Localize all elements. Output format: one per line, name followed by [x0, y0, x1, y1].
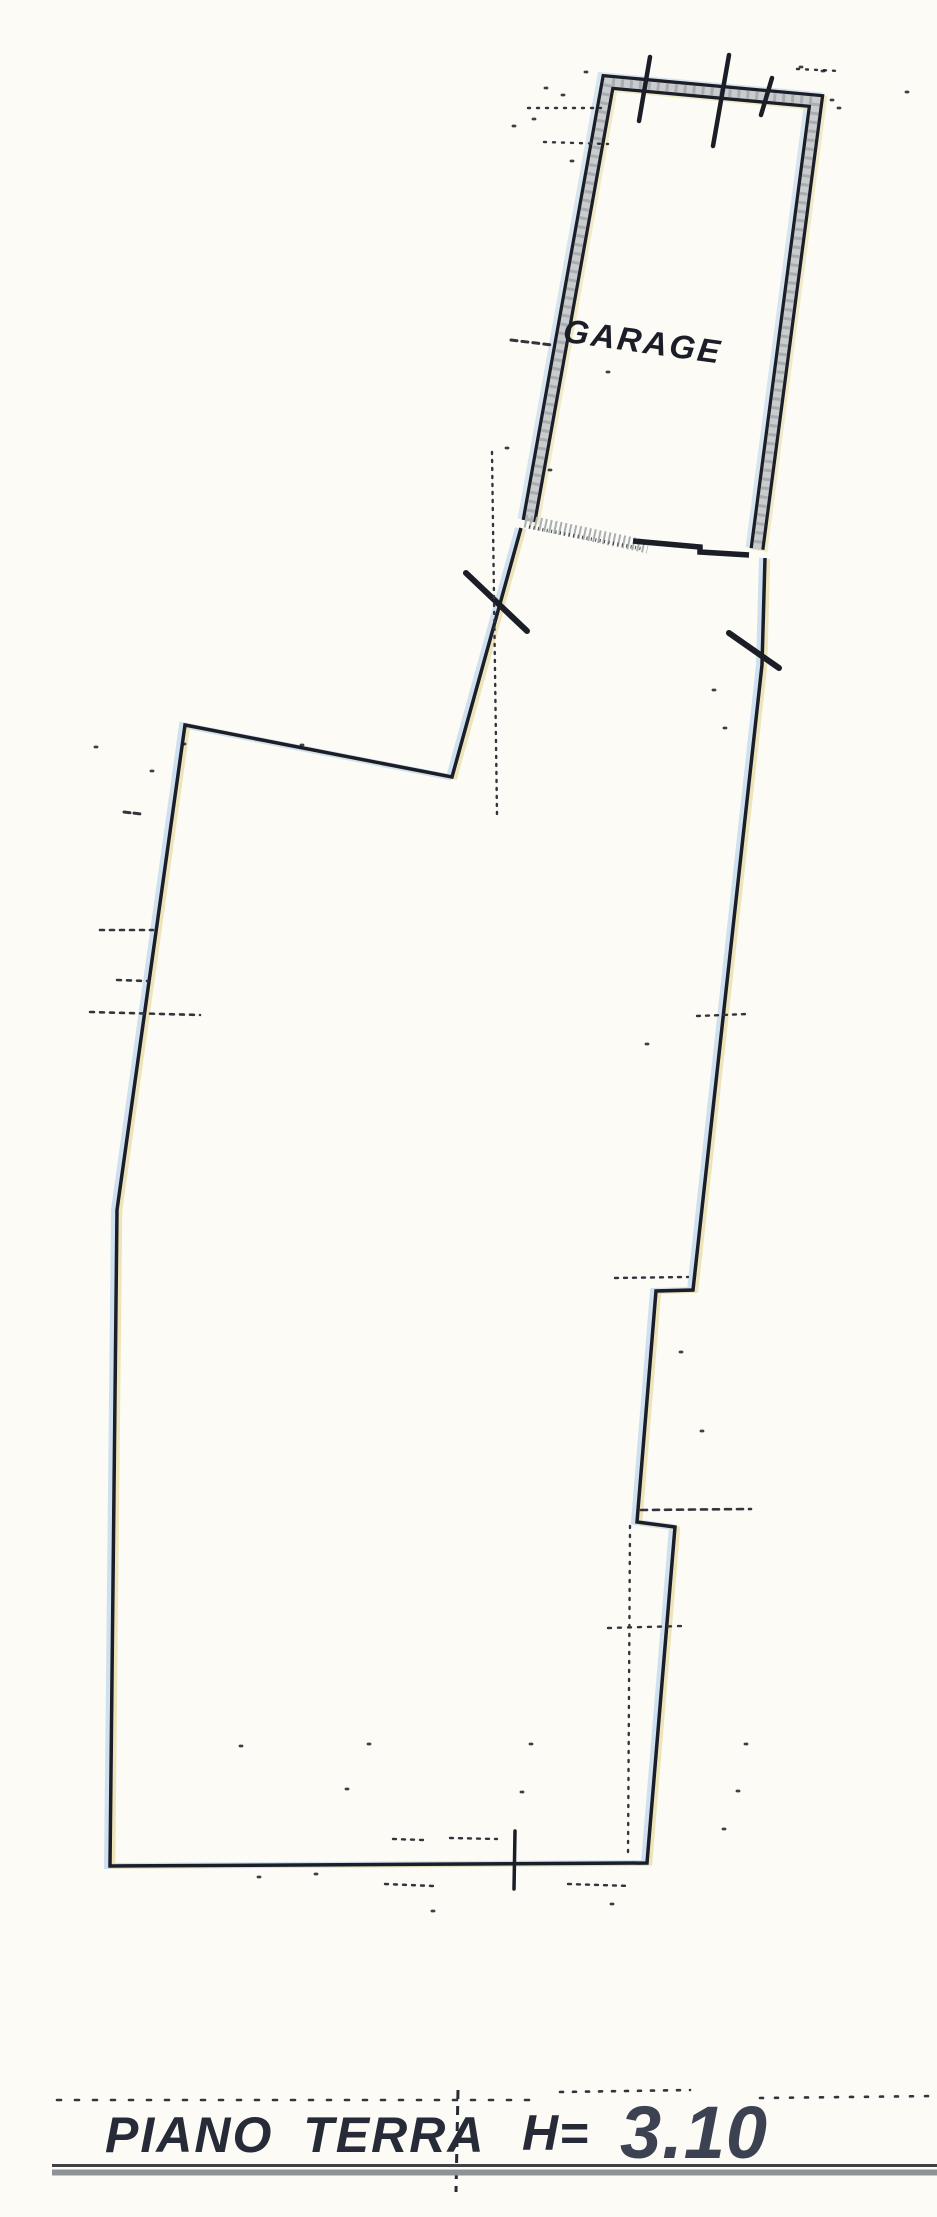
footer-height-prefix: H= [522, 2105, 589, 2161]
scanned-floor-plan-page: GARAGE PIANO TERRA H= 3.10 [0, 0, 937, 2217]
footer-height-value: 3.10 [620, 2091, 768, 2174]
paper-background [0, 0, 937, 2217]
footer-floor-label: PIANO TERRA [105, 2107, 485, 2163]
floor-plan-canvas: GARAGE PIANO TERRA H= 3.10 [0, 0, 937, 2217]
bottom-edge-tick [514, 1831, 515, 1889]
dotted-line-first-step [615, 1277, 688, 1278]
